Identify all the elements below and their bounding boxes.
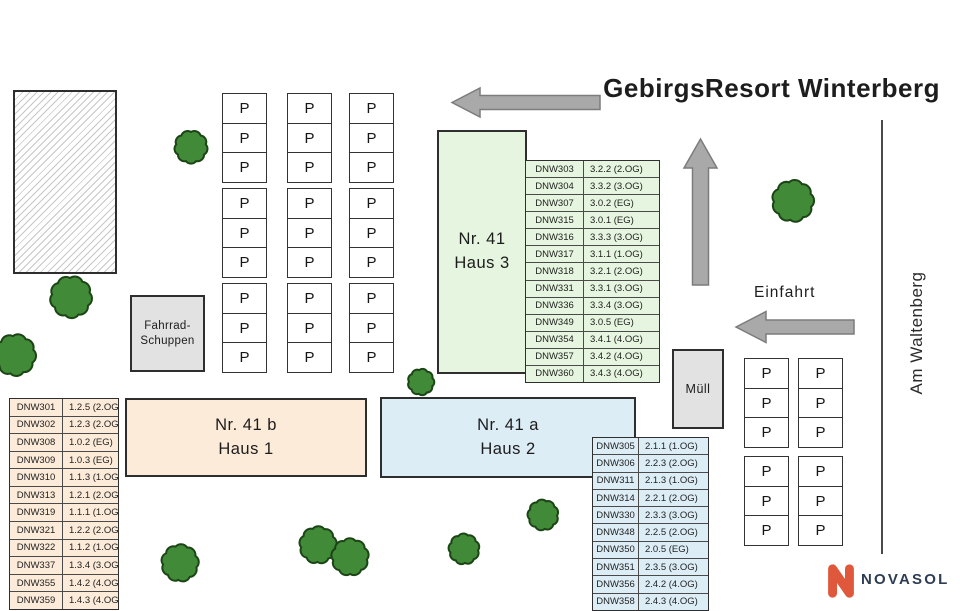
table-row: DNW3052.1.1 (1.OG) bbox=[593, 438, 708, 454]
table-row: DNW3131.2.1 (2.OG) bbox=[10, 486, 118, 504]
unit-id-cell: DNW310 bbox=[10, 469, 63, 486]
parking-space: P bbox=[350, 189, 393, 218]
parking-space: P bbox=[799, 486, 842, 516]
unit-id-cell: DNW360 bbox=[526, 366, 584, 382]
waste-area: Müll bbox=[672, 349, 724, 429]
parking-space: P bbox=[223, 152, 266, 182]
table-row: DNW3062.2.3 (2.OG) bbox=[593, 454, 708, 471]
table-row: DNW3112.1.3 (1.OG) bbox=[593, 472, 708, 489]
unit-id-cell: DNW354 bbox=[526, 332, 584, 348]
site-map: GebirgsResort Winterberg Nr. 41 Haus 3 N… bbox=[0, 0, 960, 611]
tree-icon bbox=[46, 272, 96, 322]
unit-id-cell: DNW351 bbox=[593, 559, 639, 575]
unit-id-cell: DNW322 bbox=[10, 540, 63, 557]
parking-space: P bbox=[350, 284, 393, 313]
parking-space: P bbox=[350, 152, 393, 182]
apartment-cell: 2.3.5 (3.OG) bbox=[639, 559, 708, 575]
apartment-cell: 2.4.3 (4.OG) bbox=[639, 594, 708, 610]
apartment-cell: 1.3.4 (3.OG) bbox=[63, 557, 118, 574]
unit-id-cell: DNW304 bbox=[526, 178, 584, 194]
parking-space: P bbox=[223, 247, 266, 277]
bike-shed-label: Fahrrad- Schuppen bbox=[140, 319, 194, 349]
apartment-cell: 3.2.2 (2.OG) bbox=[584, 161, 659, 177]
tree-icon bbox=[523, 495, 563, 535]
unit-id-cell: DNW319 bbox=[10, 504, 63, 521]
apartment-cell: 2.2.5 (2.OG) bbox=[639, 524, 708, 540]
table-row: DNW3043.3.2 (3.OG) bbox=[526, 177, 659, 194]
table-row: DNW3011.2.5 (2.OG) bbox=[10, 399, 118, 416]
parking-space: P bbox=[288, 284, 331, 313]
parking-space: P bbox=[350, 247, 393, 277]
entrance-label: Einfahrt bbox=[754, 284, 815, 302]
street-line bbox=[881, 120, 883, 554]
unit-id-cell: DNW314 bbox=[593, 490, 639, 506]
table-row: DNW3551.4.2 (4.OG) bbox=[10, 574, 118, 592]
parking-group: PPP bbox=[222, 93, 267, 183]
unit-id-cell: DNW301 bbox=[10, 399, 63, 416]
table-row: DNW3363.3.4 (3.OG) bbox=[526, 297, 659, 314]
parking-group: PPP bbox=[349, 93, 394, 183]
parking-space: P bbox=[745, 457, 788, 486]
apartment-cell: 3.0.1 (EG) bbox=[584, 212, 659, 228]
parking-space: P bbox=[350, 123, 393, 153]
table-row: DNW3543.4.1 (4.OG) bbox=[526, 331, 659, 348]
apartment-table-haus-3: DNW3033.2.2 (2.OG)DNW3043.3.2 (3.OG)DNW3… bbox=[525, 160, 660, 383]
apartment-cell: 1.2.1 (2.OG) bbox=[63, 487, 118, 504]
apartment-cell: 3.0.2 (EG) bbox=[584, 195, 659, 211]
table-row: DNW3021.2.3 (2.OG) bbox=[10, 416, 118, 434]
table-row: DNW3091.0.3 (EG) bbox=[10, 451, 118, 469]
parking-group: PPP bbox=[798, 456, 843, 546]
unit-id-cell: DNW311 bbox=[593, 473, 639, 489]
table-row: DNW3163.3.3 (3.OG) bbox=[526, 228, 659, 245]
parking-space: P bbox=[350, 342, 393, 372]
unit-id-cell: DNW358 bbox=[593, 594, 639, 610]
apartment-cell: 3.4.3 (4.OG) bbox=[584, 366, 659, 382]
table-row: DNW3591.4.3 (4.OG) bbox=[10, 591, 118, 609]
apartment-cell: 3.3.1 (3.OG) bbox=[584, 281, 659, 297]
unit-id-cell: DNW331 bbox=[526, 281, 584, 297]
apartment-cell: 1.2.5 (2.OG) bbox=[63, 399, 118, 416]
parking-space: P bbox=[288, 152, 331, 182]
apartment-cell: 1.1.2 (1.OG) bbox=[63, 540, 118, 557]
parking-space: P bbox=[223, 218, 266, 248]
table-row: DNW3371.3.4 (3.OG) bbox=[10, 556, 118, 574]
apartment-cell: 3.0.5 (EG) bbox=[584, 315, 659, 331]
apartment-cell: 3.2.1 (2.OG) bbox=[584, 263, 659, 279]
table-row: DNW3482.2.5 (2.OG) bbox=[593, 523, 708, 540]
parking-space: P bbox=[745, 417, 788, 447]
parking-space: P bbox=[223, 284, 266, 313]
table-row: DNW3493.0.5 (EG) bbox=[526, 314, 659, 331]
parking-space: P bbox=[223, 123, 266, 153]
tree-icon bbox=[403, 364, 439, 400]
unit-id-cell: DNW315 bbox=[526, 212, 584, 228]
apartment-table-haus-1: DNW3011.2.5 (2.OG)DNW3021.2.3 (2.OG)DNW3… bbox=[9, 398, 119, 610]
table-row: DNW3502.0.5 (EG) bbox=[593, 541, 708, 558]
apartment-cell: 1.0.2 (EG) bbox=[63, 434, 118, 451]
tree-icon bbox=[170, 126, 212, 168]
waste-area-label: Müll bbox=[686, 380, 711, 398]
apartment-cell: 1.2.3 (2.OG) bbox=[63, 417, 118, 434]
apartment-cell: 2.1.3 (1.OG) bbox=[639, 473, 708, 489]
unit-id-cell: DNW305 bbox=[593, 438, 639, 454]
bike-shed: Fahrrad- Schuppen bbox=[130, 295, 205, 372]
table-row: DNW3211.2.2 (2.OG) bbox=[10, 521, 118, 539]
unit-id-cell: DNW308 bbox=[10, 434, 63, 451]
parking-space: P bbox=[223, 94, 266, 123]
apartment-cell: 1.4.2 (4.OG) bbox=[63, 575, 118, 592]
parking-space: P bbox=[223, 313, 266, 343]
tree-icon bbox=[327, 534, 373, 580]
unit-id-cell: DNW355 bbox=[10, 575, 63, 592]
page-title: GebirgsResort Winterberg bbox=[603, 73, 940, 104]
arrow-up-icon bbox=[681, 136, 721, 288]
apartment-cell: 1.4.3 (4.OG) bbox=[63, 592, 118, 609]
parking-space: P bbox=[799, 388, 842, 418]
parking-group: PPP bbox=[798, 358, 843, 448]
unit-id-cell: DNW309 bbox=[10, 452, 63, 469]
unit-id-cell: DNW359 bbox=[10, 592, 63, 609]
apartment-cell: 2.4.2 (4.OG) bbox=[639, 576, 708, 592]
table-row: DNW3173.1.1 (1.OG) bbox=[526, 245, 659, 262]
tree-icon bbox=[768, 176, 818, 226]
unit-id-cell: DNW303 bbox=[526, 161, 584, 177]
unit-id-cell: DNW350 bbox=[593, 542, 639, 558]
table-row: DNW3081.0.2 (EG) bbox=[10, 433, 118, 451]
parking-group: PPP bbox=[287, 283, 332, 373]
building-haus-3: Nr. 41 Haus 3 bbox=[437, 130, 527, 374]
parking-group: PPP bbox=[349, 283, 394, 373]
building-haus-1-label: Nr. 41 b Haus 1 bbox=[215, 414, 277, 462]
parking-group: PPP bbox=[222, 283, 267, 373]
parking-space: P bbox=[745, 486, 788, 516]
unit-id-cell: DNW302 bbox=[10, 417, 63, 434]
apartment-cell: 2.0.5 (EG) bbox=[639, 542, 708, 558]
parking-space: P bbox=[350, 313, 393, 343]
table-row: DNW3073.0.2 (EG) bbox=[526, 194, 659, 211]
parking-group: PPP bbox=[349, 188, 394, 278]
unit-id-cell: DNW357 bbox=[526, 349, 584, 365]
apartment-cell: 1.2.2 (2.OG) bbox=[63, 522, 118, 539]
unit-id-cell: DNW349 bbox=[526, 315, 584, 331]
table-row: DNW3302.3.3 (3.OG) bbox=[593, 506, 708, 523]
table-row: DNW3512.3.5 (3.OG) bbox=[593, 558, 708, 575]
unit-id-cell: DNW316 bbox=[526, 229, 584, 245]
parking-space: P bbox=[799, 359, 842, 388]
table-row: DNW3153.0.1 (EG) bbox=[526, 211, 659, 228]
tree-icon bbox=[444, 529, 484, 569]
parking-space: P bbox=[288, 189, 331, 218]
table-row: DNW3033.2.2 (2.OG) bbox=[526, 161, 659, 177]
parking-group: PPP bbox=[744, 456, 789, 546]
apartment-cell: 3.3.4 (3.OG) bbox=[584, 298, 659, 314]
street-name: Am Waltenberg bbox=[907, 252, 933, 414]
parking-space: P bbox=[745, 359, 788, 388]
parking-space: P bbox=[799, 515, 842, 545]
table-row: DNW3101.1.3 (1.OG) bbox=[10, 468, 118, 486]
parking-space: P bbox=[350, 218, 393, 248]
parking-space: P bbox=[223, 189, 266, 218]
building-haus-1: Nr. 41 b Haus 1 bbox=[125, 398, 367, 477]
apartment-cell: 1.1.1 (1.OG) bbox=[63, 504, 118, 521]
table-row: DNW3191.1.1 (1.OG) bbox=[10, 503, 118, 521]
arrow-left-icon bbox=[448, 85, 603, 120]
apartment-cell: 2.3.3 (3.OG) bbox=[639, 507, 708, 523]
apartment-cell: 2.1.1 (1.OG) bbox=[639, 438, 708, 454]
table-row: DNW3603.4.3 (4.OG) bbox=[526, 365, 659, 382]
parking-space: P bbox=[288, 247, 331, 277]
hatched-building-outline bbox=[13, 90, 117, 274]
parking-group: PPP bbox=[222, 188, 267, 278]
parking-space: P bbox=[288, 123, 331, 153]
parking-group: PPP bbox=[287, 93, 332, 183]
brand-name: NOVASOL bbox=[861, 571, 949, 588]
building-haus-3-label: Nr. 41 Haus 3 bbox=[454, 228, 509, 276]
unit-id-cell: DNW313 bbox=[10, 487, 63, 504]
apartment-cell: 3.1.1 (1.OG) bbox=[584, 246, 659, 262]
apartment-cell: 2.2.3 (2.OG) bbox=[639, 455, 708, 471]
unit-id-cell: DNW337 bbox=[10, 557, 63, 574]
parking-space: P bbox=[350, 94, 393, 123]
apartment-cell: 2.2.1 (2.OG) bbox=[639, 490, 708, 506]
apartment-cell: 1.1.3 (1.OG) bbox=[63, 469, 118, 486]
unit-id-cell: DNW336 bbox=[526, 298, 584, 314]
table-row: DNW3221.1.2 (1.OG) bbox=[10, 539, 118, 557]
unit-id-cell: DNW306 bbox=[593, 455, 639, 471]
table-row: DNW3562.4.2 (4.OG) bbox=[593, 575, 708, 592]
unit-id-cell: DNW356 bbox=[593, 576, 639, 592]
unit-id-cell: DNW318 bbox=[526, 263, 584, 279]
apartment-cell: 3.4.1 (4.OG) bbox=[584, 332, 659, 348]
apartment-cell: 3.3.2 (3.OG) bbox=[584, 178, 659, 194]
parking-space: P bbox=[745, 388, 788, 418]
parking-space: P bbox=[745, 515, 788, 545]
unit-id-cell: DNW307 bbox=[526, 195, 584, 211]
apartment-table-haus-2: DNW3052.1.1 (1.OG)DNW3062.2.3 (2.OG)DNW3… bbox=[592, 437, 709, 611]
apartment-cell: 1.0.3 (EG) bbox=[63, 452, 118, 469]
tree-icon bbox=[157, 540, 203, 586]
novasol-logo-icon bbox=[826, 561, 856, 601]
table-row: DNW3582.4.3 (4.OG) bbox=[593, 593, 708, 610]
parking-space: P bbox=[288, 313, 331, 343]
table-row: DNW3573.4.2 (4.OG) bbox=[526, 348, 659, 365]
parking-group: PPP bbox=[287, 188, 332, 278]
parking-group: PPP bbox=[744, 358, 789, 448]
parking-space: P bbox=[288, 218, 331, 248]
parking-space: P bbox=[288, 94, 331, 123]
tree-icon bbox=[0, 330, 40, 380]
unit-id-cell: DNW330 bbox=[593, 507, 639, 523]
table-row: DNW3142.2.1 (2.OG) bbox=[593, 489, 708, 506]
apartment-cell: 3.3.3 (3.OG) bbox=[584, 229, 659, 245]
unit-id-cell: DNW317 bbox=[526, 246, 584, 262]
table-row: DNW3313.3.1 (3.OG) bbox=[526, 280, 659, 297]
parking-space: P bbox=[223, 342, 266, 372]
entrance-arrow-icon bbox=[733, 308, 858, 346]
parking-space: P bbox=[288, 342, 331, 372]
table-row: DNW3183.2.1 (2.OG) bbox=[526, 262, 659, 279]
parking-space: P bbox=[799, 457, 842, 486]
parking-space: P bbox=[799, 417, 842, 447]
building-haus-2-label: Nr. 41 a Haus 2 bbox=[477, 414, 539, 462]
apartment-cell: 3.4.2 (4.OG) bbox=[584, 349, 659, 365]
unit-id-cell: DNW348 bbox=[593, 524, 639, 540]
unit-id-cell: DNW321 bbox=[10, 522, 63, 539]
